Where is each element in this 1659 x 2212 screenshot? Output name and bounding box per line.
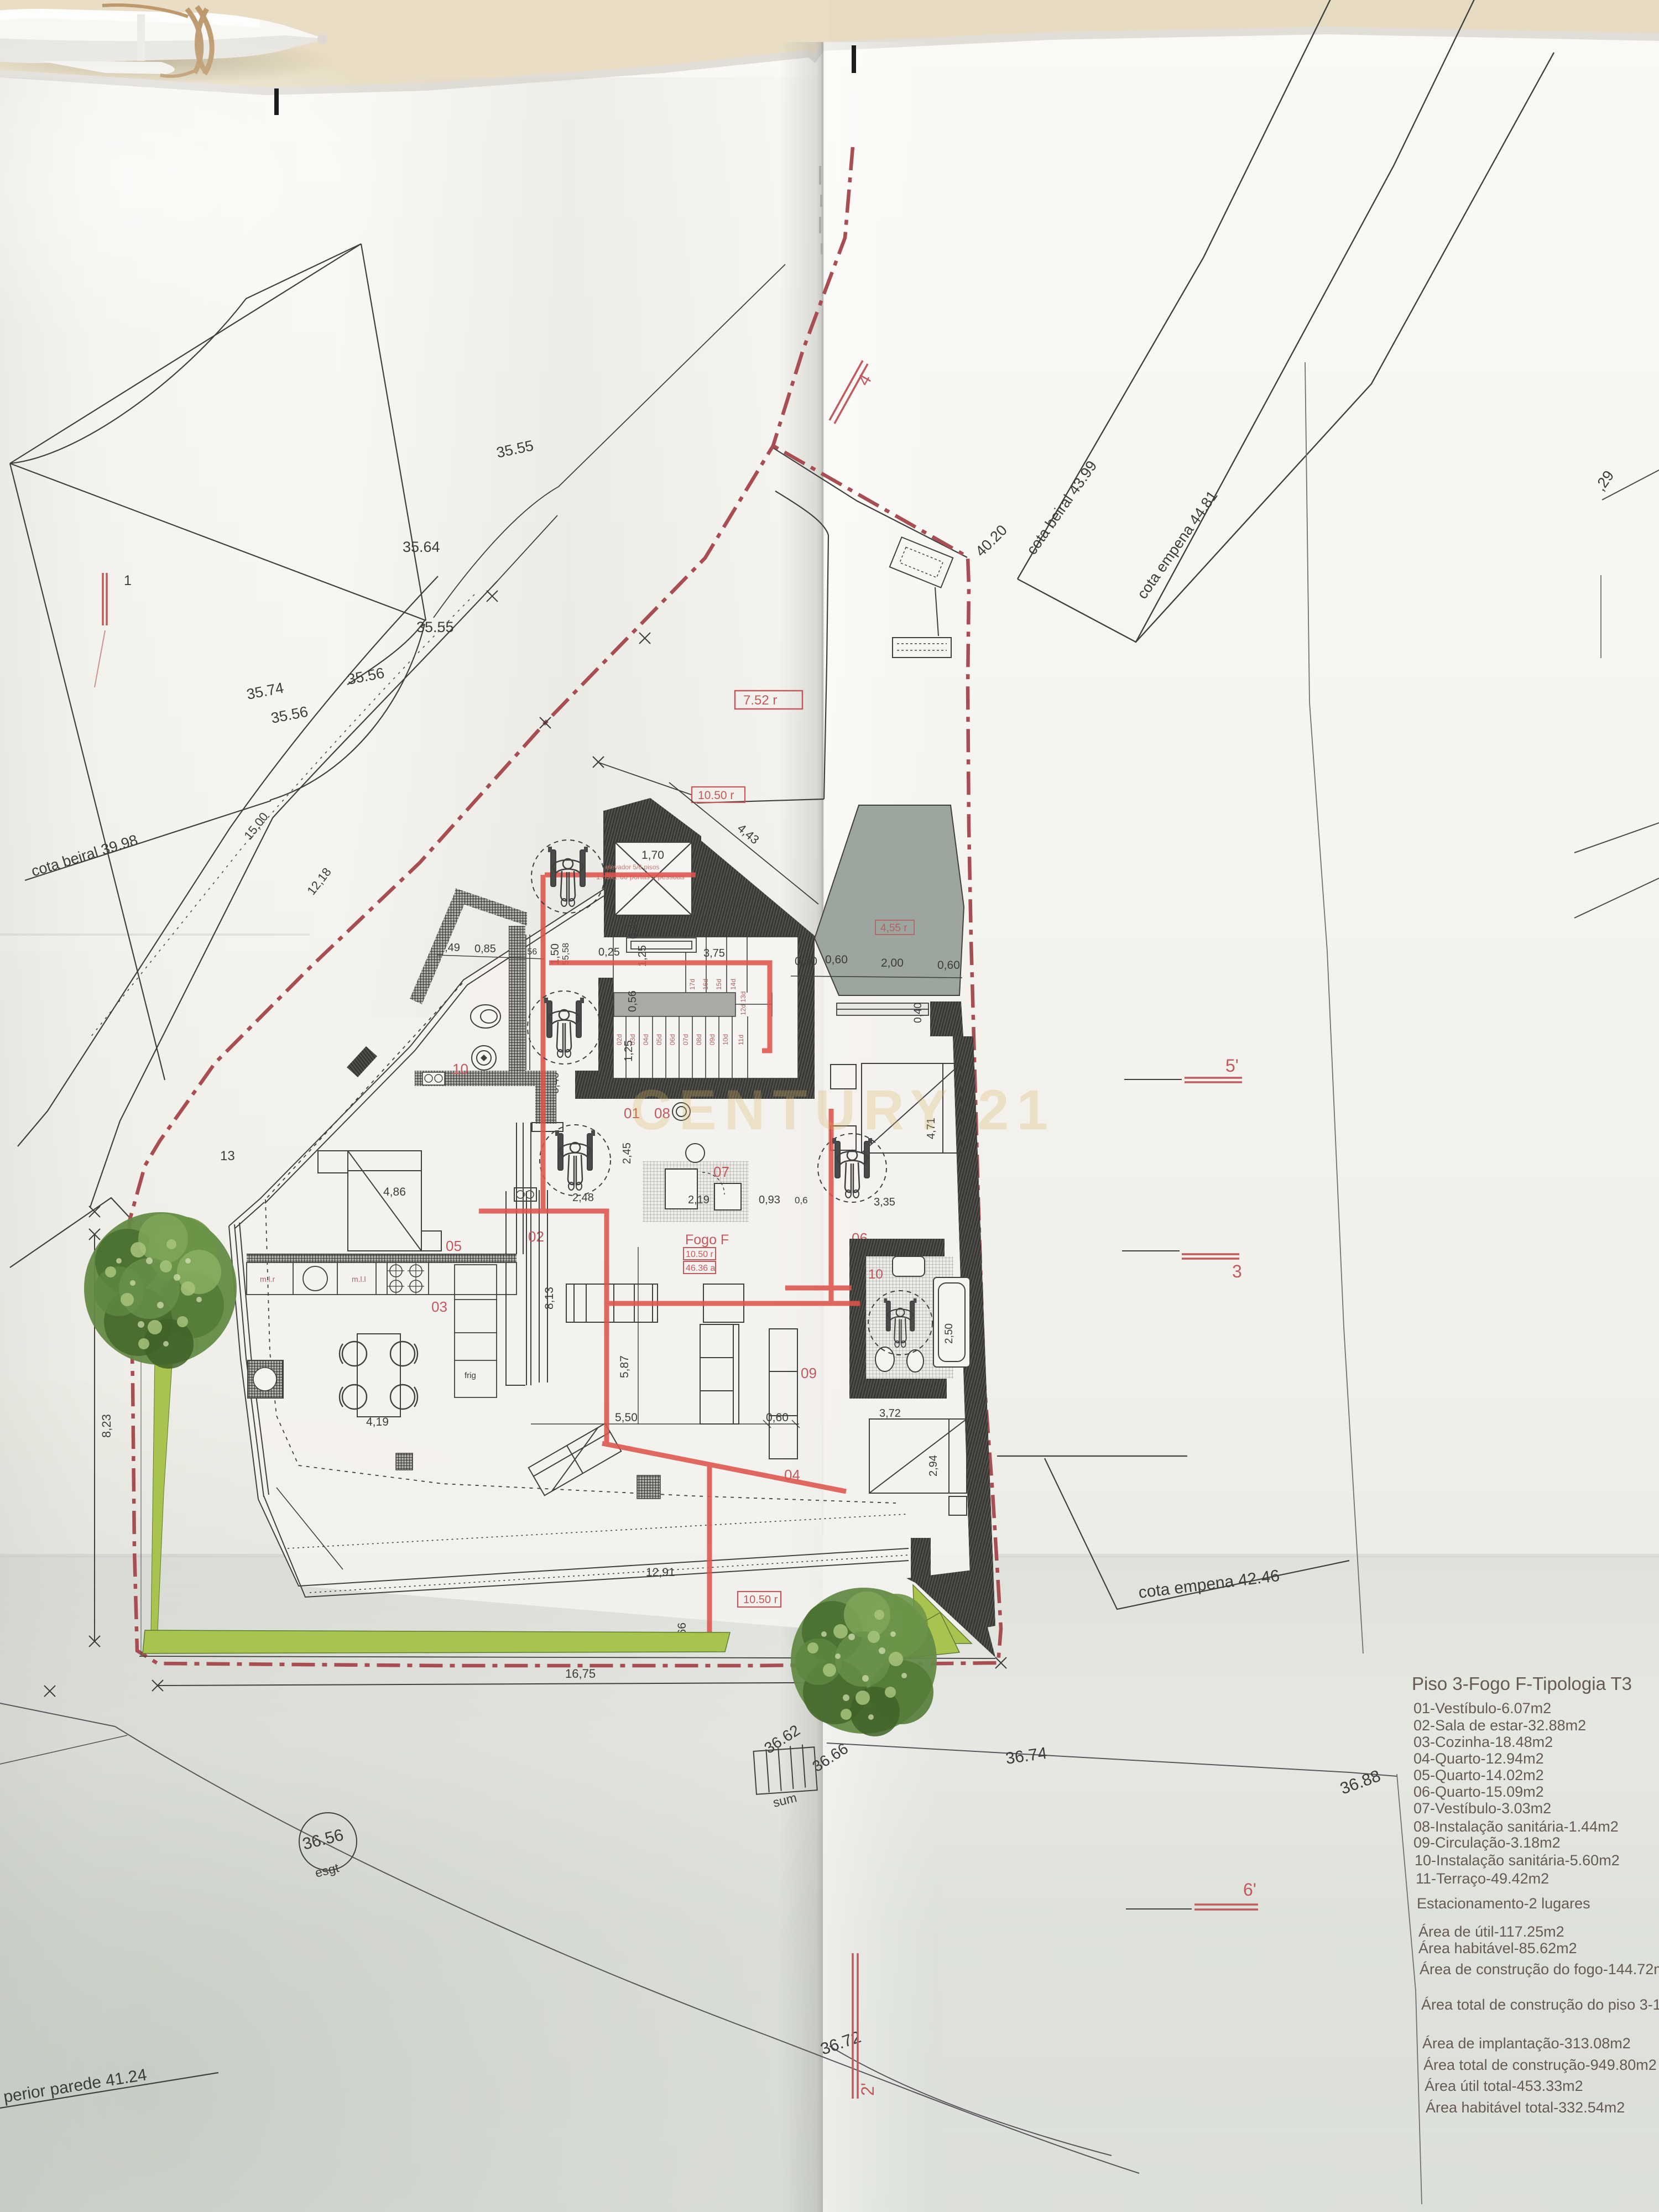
svg-text:0,60: 0,60: [766, 1411, 789, 1424]
svg-text:1,70: 1,70: [641, 849, 664, 862]
svg-text:09d: 09d: [708, 1034, 716, 1045]
svg-text:5': 5': [1225, 1056, 1239, 1076]
svg-text:04d: 04d: [642, 1034, 650, 1045]
svg-text:2,48: 2,48: [572, 1192, 594, 1204]
svg-text:09-Circulação-3.18m2: 09-Circulação-3.18m2: [1413, 1834, 1561, 1851]
svg-text:0,6: 0,6: [795, 1195, 808, 1206]
svg-text:12,91: 12,91: [646, 1566, 675, 1579]
svg-text:2,45: 2,45: [621, 1142, 633, 1164]
svg-text:Piso 3-Fogo F-Tipologia T3: Piso 3-Fogo F-Tipologia T3: [1412, 1673, 1632, 1694]
svg-text:10.50 r: 10.50 r: [698, 789, 734, 802]
svg-text:03: 03: [431, 1298, 447, 1315]
svg-text:2,00: 2,00: [881, 957, 904, 969]
svg-text:0,60: 0,60: [825, 953, 848, 966]
svg-text:6': 6': [1243, 1880, 1256, 1900]
svg-text:46.36 a: 46.36 a: [686, 1264, 715, 1273]
svg-text:4,19: 4,19: [366, 1416, 389, 1428]
svg-text:16,75: 16,75: [565, 1667, 596, 1681]
svg-text:02-Sala de estar-32.88m2: 02-Sala de estar-32.88m2: [1413, 1717, 1586, 1734]
svg-text:1,25: 1,25: [623, 1040, 635, 1062]
svg-text:11-Terraço-49.42m2: 11-Terraço-49.42m2: [1416, 1870, 1549, 1887]
svg-text:8,13: 8,13: [543, 1287, 556, 1310]
svg-text:3,75: 3,75: [703, 947, 725, 959]
svg-text:11d: 11d: [737, 1035, 745, 1045]
svg-text:04-Quarto-12.94m2: 04-Quarto-12.94m2: [1413, 1750, 1544, 1767]
svg-text:Área total de construção do p: Área total de construção do piso 3-17: [1421, 1996, 1659, 2013]
svg-text:01-Vestíbulo-6.07m2: 01-Vestíbulo-6.07m2: [1413, 1700, 1551, 1717]
svg-text:0,40: 0,40: [628, 917, 640, 939]
svg-text:frig: frig: [465, 1371, 476, 1380]
svg-text:2,94: 2,94: [927, 1455, 940, 1477]
svg-text:15d: 15d: [715, 979, 723, 990]
svg-text:3: 3: [1232, 1261, 1242, 1281]
svg-text:4,55 r: 4,55 r: [880, 922, 907, 934]
svg-text:09: 09: [801, 1365, 817, 1381]
svg-text:08-Instalação sanitária-1.44m2: 08-Instalação sanitária-1.44m2: [1413, 1818, 1619, 1835]
svg-text:02d: 02d: [615, 1034, 623, 1045]
svg-text:Estacionamento-2 lugares: Estacionamento-2 lugares: [1417, 1895, 1590, 1912]
svg-text:Área de construção do fogo-144: Área de construção do fogo-144.72m2: [1420, 1961, 1659, 1978]
svg-text:16d: 16d: [702, 979, 709, 990]
svg-text:Área de útil-117.25m2: Área de útil-117.25m2: [1418, 1923, 1564, 1940]
svg-text:0,85: 0,85: [474, 943, 496, 955]
svg-text:10-Instalação sanitária-5.60m2: 10-Instalação sanitária-5.60m2: [1415, 1852, 1620, 1869]
svg-text:06-Quarto-15.09m2: 06-Quarto-15.09m2: [1413, 1783, 1544, 1800]
svg-text:elevador 5/6 pisos: elevador 5/6 pisos: [606, 863, 659, 871]
svg-text:13: 13: [220, 1149, 235, 1164]
svg-text:03-Cozinha-18.48m2: 03-Cozinha-18.48m2: [1413, 1734, 1553, 1750]
svg-text:14d: 14d: [729, 979, 737, 990]
svg-text:0,56: 0,56: [627, 990, 639, 1012]
svg-text:7.52 r: 7.52 r: [743, 693, 777, 708]
svg-text:06d: 06d: [669, 1034, 676, 1045]
svg-text:10: 10: [452, 1061, 468, 1077]
svg-text:17d: 17d: [688, 979, 696, 990]
svg-text:10d: 10d: [722, 1034, 729, 1045]
svg-text:12d 13d: 12d 13d: [739, 992, 747, 1015]
svg-text:3,35: 3,35: [874, 1196, 895, 1208]
svg-text:4,86: 4,86: [383, 1186, 406, 1198]
svg-text:8,23: 8,23: [100, 1414, 113, 1438]
svg-text:m.l.l: m.l.l: [352, 1275, 366, 1284]
svg-text:07-Vestíbulo-3.03m2: 07-Vestíbulo-3.03m2: [1413, 1800, 1551, 1817]
svg-text:05-Quarto-14.02m2: 05-Quarto-14.02m2: [1413, 1767, 1544, 1783]
svg-text:Fogo F: Fogo F: [685, 1232, 729, 1248]
svg-text:0,25: 0,25: [598, 946, 620, 958]
svg-text:Área útil total-453.33m2: Área útil total-453.33m2: [1425, 2078, 1583, 2094]
svg-text:5,50: 5,50: [615, 1411, 638, 1424]
svg-text:07: 07: [713, 1164, 729, 1180]
svg-text:05: 05: [446, 1238, 462, 1254]
svg-text:02: 02: [528, 1228, 544, 1245]
svg-text:35.64: 35.64: [403, 539, 440, 555]
svg-text:10: 10: [868, 1267, 883, 1282]
svg-text:07d: 07d: [682, 1034, 690, 1045]
svg-text:Área de implantação-313.08m2: Área de implantação-313.08m2: [1422, 2035, 1631, 2052]
svg-text:5,87: 5,87: [618, 1355, 631, 1378]
svg-text:Área habitável-85.62m2: Área habitável-85.62m2: [1418, 1940, 1577, 1957]
svg-text:2,19: 2,19: [688, 1194, 709, 1206]
svg-text:Área total de construção-949.8: Área total de construção-949.80m2: [1423, 2057, 1657, 2073]
svg-text:0,40: 0,40: [912, 1003, 924, 1023]
svg-text:m.l.r: m.l.r: [260, 1275, 275, 1284]
svg-text:10.50 r: 10.50 r: [686, 1250, 713, 1259]
svg-text:2,50: 2,50: [943, 1323, 955, 1344]
svg-text:1: 1: [124, 573, 132, 588]
svg-text:Área habitável total-332.54m2: Área habitável total-332.54m2: [1426, 2099, 1625, 2116]
svg-text:0,30: 0,30: [795, 955, 817, 968]
svg-text:2': 2': [858, 2083, 878, 2096]
svg-text:CENTURY 21: CENTURY 21: [630, 1078, 1056, 1141]
svg-text:10.50 r: 10.50 r: [743, 1594, 778, 1606]
svg-text:05d: 05d: [655, 1034, 663, 1045]
svg-text:0,60: 0,60: [937, 959, 960, 972]
svg-text:08d: 08d: [695, 1034, 703, 1045]
svg-text:0,93: 0,93: [759, 1194, 780, 1206]
svg-text:3,72: 3,72: [879, 1407, 901, 1420]
